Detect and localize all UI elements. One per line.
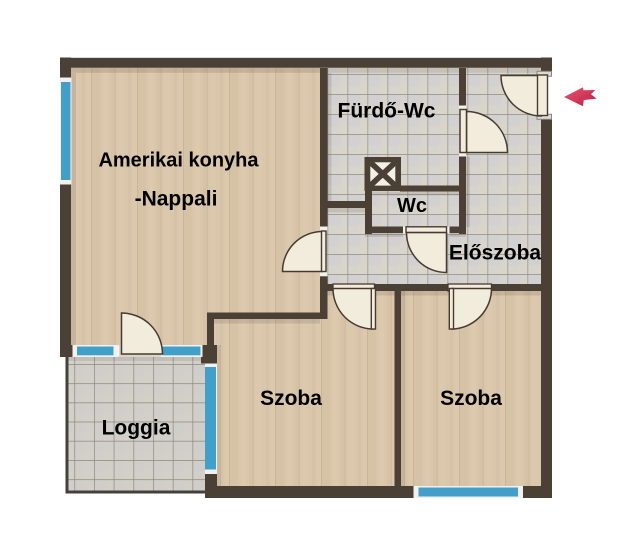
svg-text:Szoba: Szoba [440,387,502,410]
svg-text:Amerikai konyha: Amerikai konyha [98,150,259,172]
svg-text:-Nappali: -Nappali [135,188,218,211]
svg-text:Loggia: Loggia [102,417,171,440]
svg-text:Szoba: Szoba [260,387,322,410]
svg-text:Wc: Wc [397,195,427,217]
svg-text:Fürdő-Wc: Fürdő-Wc [338,100,436,123]
svg-text:Előszoba: Előszoba [449,242,542,265]
